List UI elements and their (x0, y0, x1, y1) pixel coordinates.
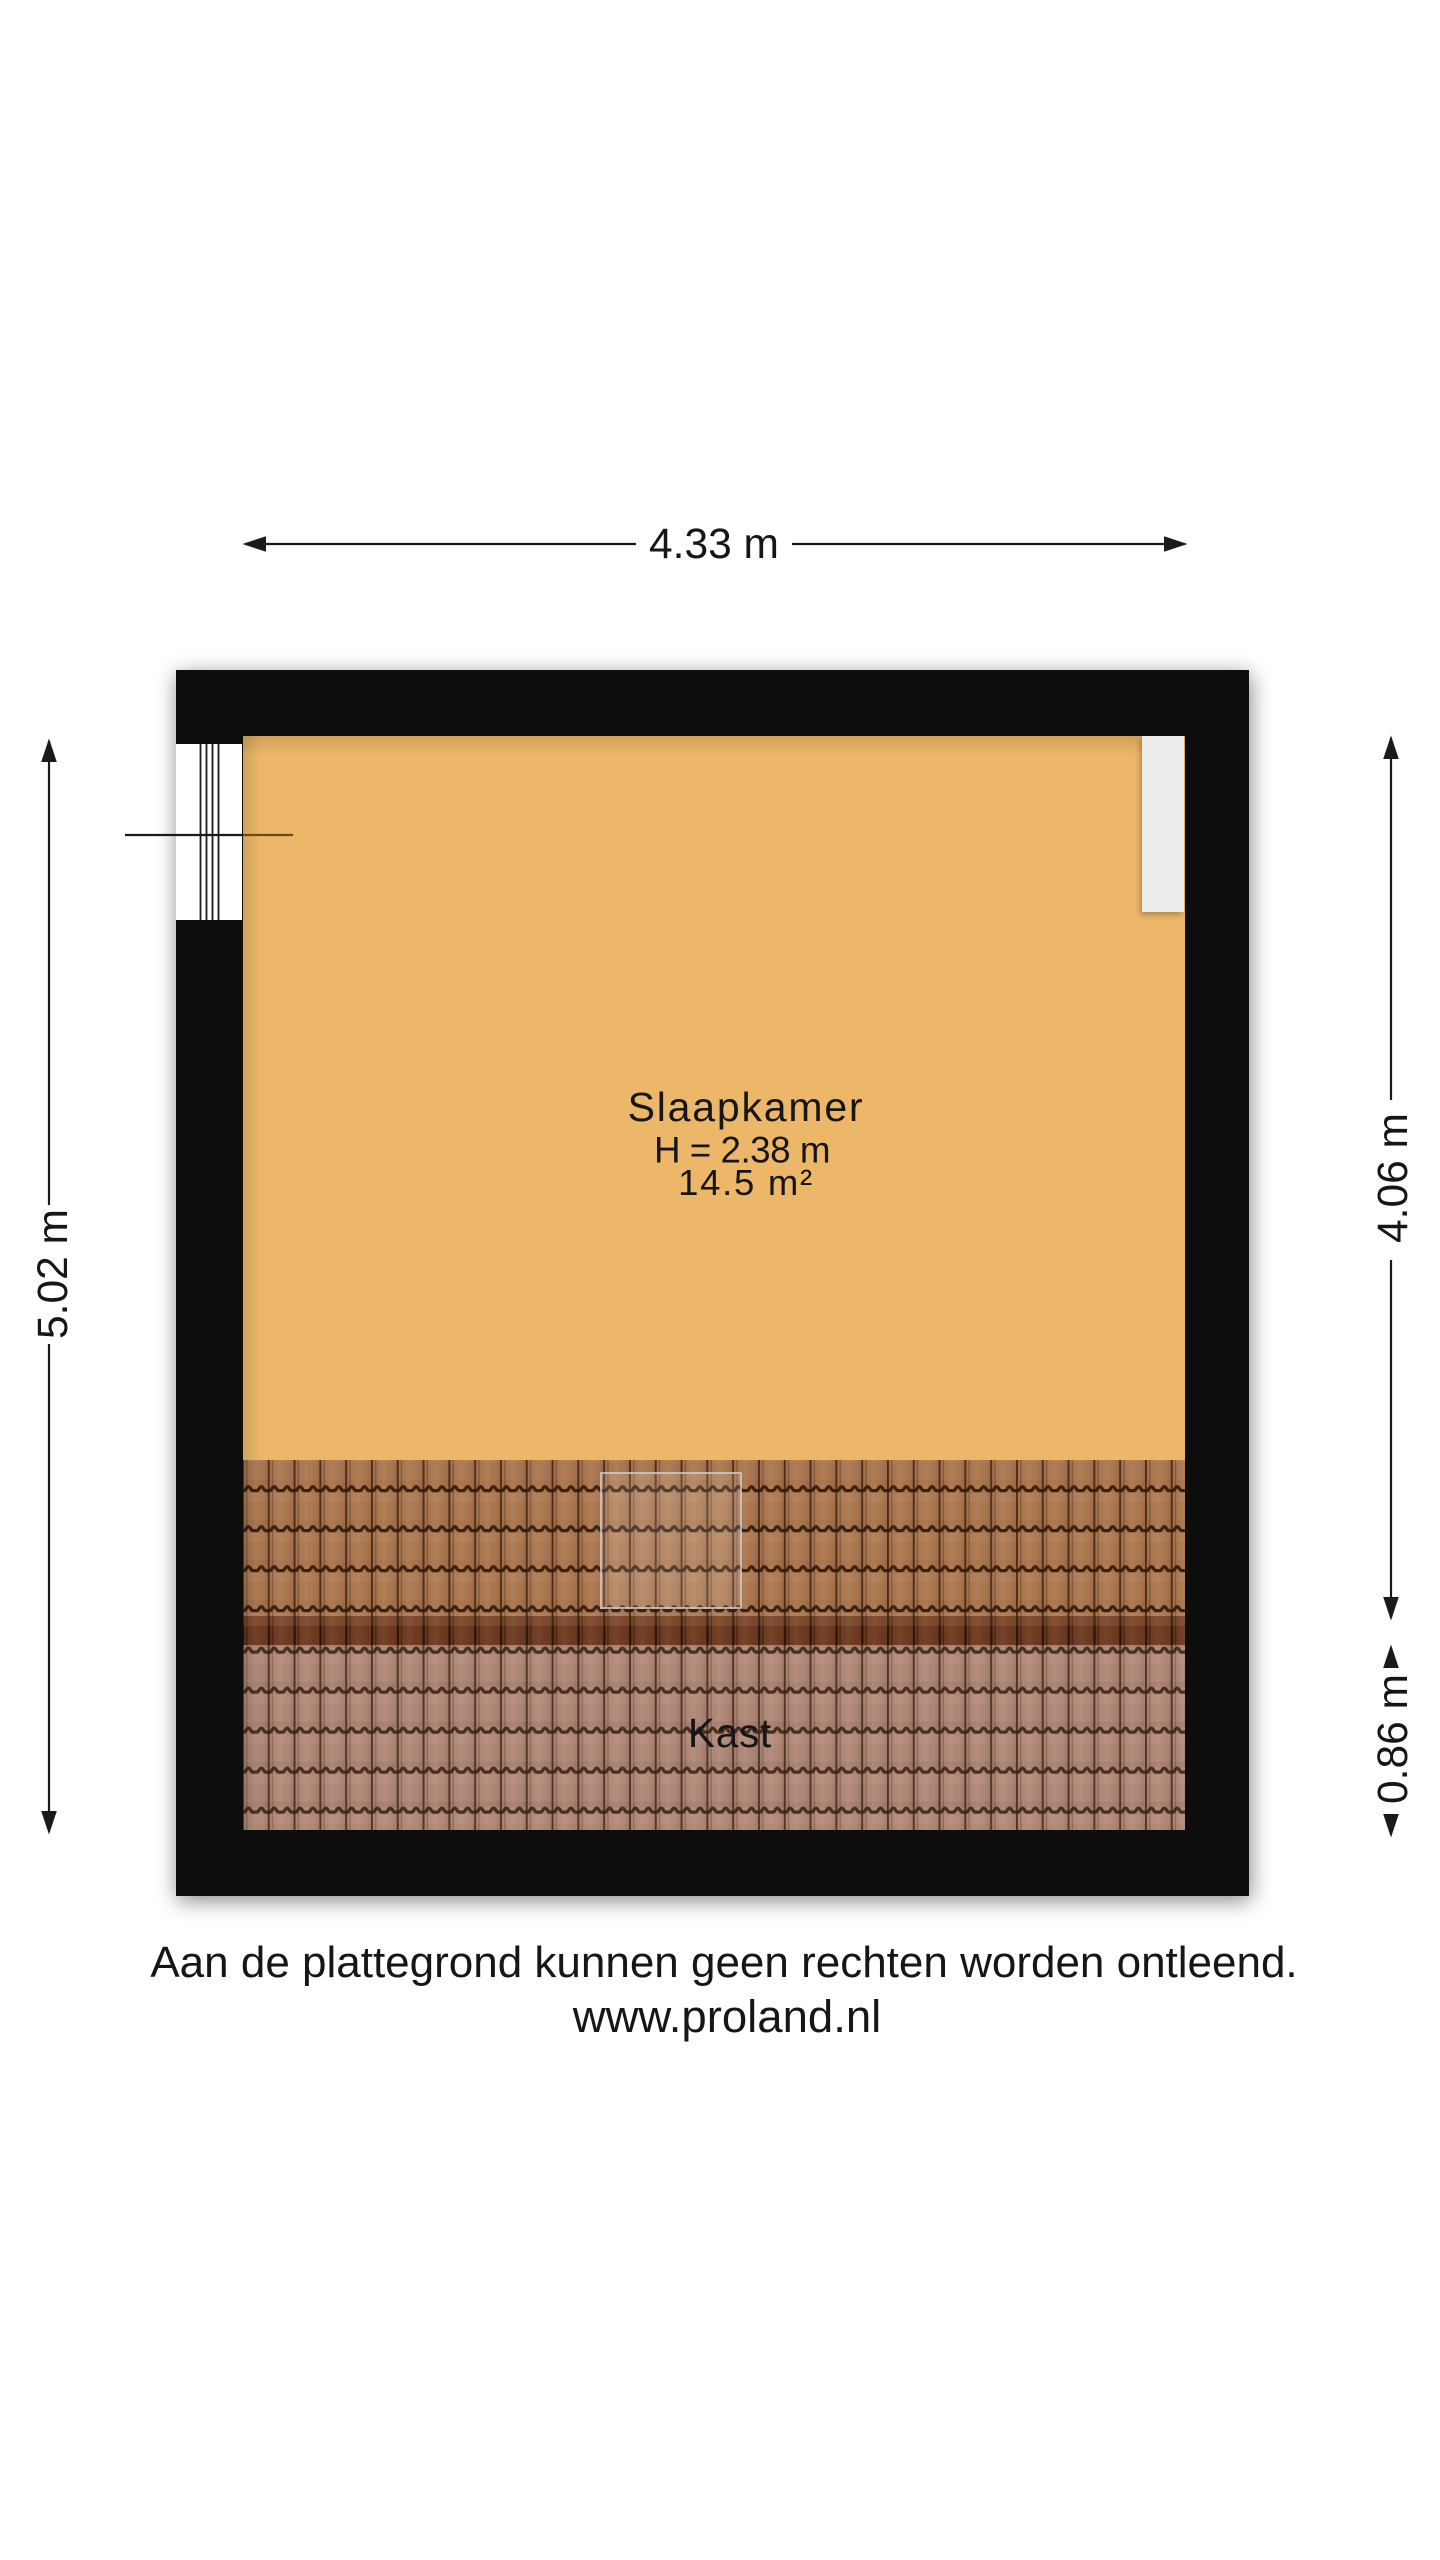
svg-text:Aan de plattegrond kunnen geen: Aan de plattegrond kunnen geen rechten w… (150, 1938, 1297, 1987)
svg-text:5.02 m: 5.02 m (30, 1209, 77, 1339)
svg-text:14.5 m²: 14.5 m² (678, 1162, 814, 1203)
svg-text:www.proland.nl: www.proland.nl (572, 1991, 882, 2042)
svg-text:Kast: Kast (688, 1710, 772, 1756)
svg-text:4.33 m: 4.33 m (649, 521, 779, 568)
svg-text:0.86 m: 0.86 m (1370, 1674, 1417, 1804)
svg-text:4.06 m: 4.06 m (1370, 1113, 1417, 1243)
svg-text:Slaapkamer: Slaapkamer (628, 1084, 865, 1130)
